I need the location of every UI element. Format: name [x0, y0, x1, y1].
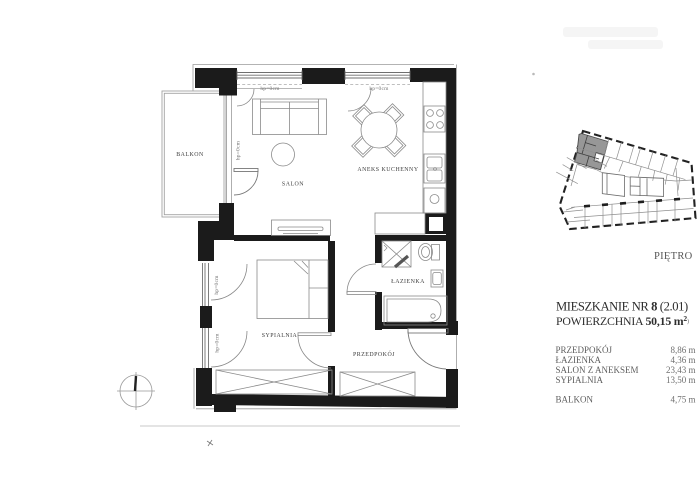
- svg-text:13,50 m: 13,50 m: [666, 375, 696, 385]
- svg-text:PRZEDPOKÓJ: PRZEDPOKÓJ: [353, 350, 395, 358]
- svg-text:POWIERZCHNIA 50,15 m2): POWIERZCHNIA 50,15 m2): [556, 314, 689, 328]
- svg-text:PIĘTRO: PIĘTRO: [654, 251, 693, 262]
- svg-text:SYPIALNIA: SYPIALNIA: [262, 333, 298, 339]
- svg-text:23,43 m: 23,43 m: [666, 365, 696, 375]
- svg-text:hp=0cm: hp=0cm: [236, 140, 242, 160]
- svg-text:ANEKS KUCHENNY: ANEKS KUCHENNY: [357, 167, 418, 173]
- svg-text:SALON Z ANEKSEM: SALON Z ANEKSEM: [556, 365, 639, 375]
- svg-text:8,86 m: 8,86 m: [670, 345, 695, 355]
- svg-text:hp=0cm: hp=0cm: [369, 86, 389, 92]
- svg-text:ŁAZIENKA: ŁAZIENKA: [556, 355, 602, 365]
- svg-text:MIESZKANIE NR 8 (2.01): MIESZKANIE NR 8 (2.01): [556, 300, 688, 314]
- svg-text:hp=0cm: hp=0cm: [215, 333, 221, 353]
- svg-text:ŁAZIENKA: ŁAZIENKA: [391, 279, 425, 285]
- svg-text:SYPIALNIA: SYPIALNIA: [556, 375, 604, 385]
- svg-text:4,36 m: 4,36 m: [670, 355, 695, 365]
- svg-text:PRZEDPOKÓJ: PRZEDPOKÓJ: [556, 345, 613, 355]
- svg-text:BALKON: BALKON: [176, 152, 204, 158]
- svg-text:hp=0cm: hp=0cm: [214, 275, 220, 295]
- svg-text:4,75 m: 4,75 m: [670, 394, 695, 404]
- svg-text:hp=0cm: hp=0cm: [260, 86, 280, 92]
- svg-text:SALON: SALON: [282, 182, 304, 188]
- svg-text:BALKON: BALKON: [556, 394, 594, 404]
